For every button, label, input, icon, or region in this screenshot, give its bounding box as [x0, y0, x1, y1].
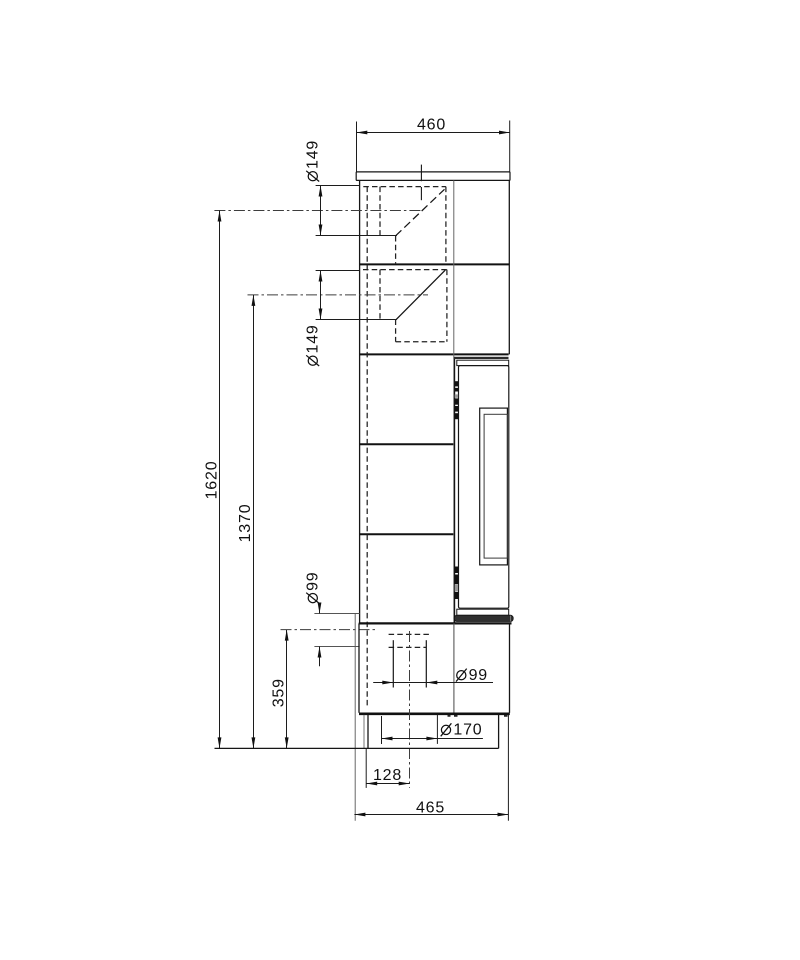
svg-text:1620: 1620	[204, 461, 221, 500]
svg-text:1370: 1370	[237, 504, 254, 543]
svg-text:460: 460	[417, 117, 446, 134]
svg-text:170: 170	[453, 722, 482, 739]
svg-text:99: 99	[469, 667, 488, 684]
svg-text:128: 128	[373, 767, 402, 784]
svg-text:149: 149	[305, 140, 322, 169]
svg-text:99: 99	[305, 571, 322, 590]
svg-text:359: 359	[271, 678, 288, 707]
svg-text:149: 149	[305, 324, 322, 353]
svg-text:465: 465	[416, 800, 445, 817]
